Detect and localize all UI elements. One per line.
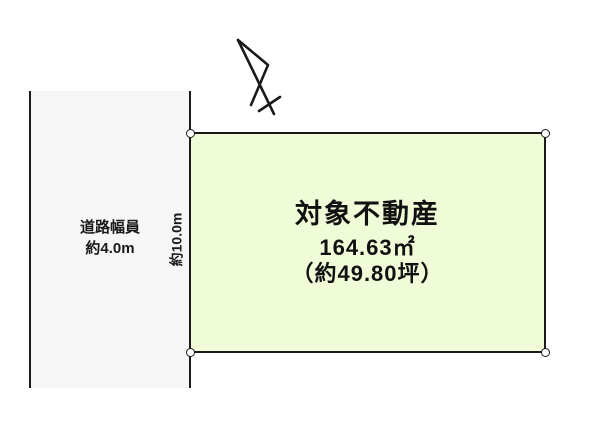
property-title: 対象不動産 xyxy=(189,198,546,230)
frontage-dimension-label: 約10.0m xyxy=(167,204,184,276)
corner-marker-icon xyxy=(186,348,195,357)
property-area-tsubo: （約49.80坪） xyxy=(189,261,546,287)
north-arrow-icon xyxy=(224,28,296,124)
corner-marker-icon xyxy=(541,348,550,357)
property-area-sqm: 164.63㎡ xyxy=(189,235,546,261)
corner-marker-icon xyxy=(541,129,550,138)
property-info: 対象不動産 164.63㎡ （約49.80坪） xyxy=(189,198,546,287)
lot-layout-diagram: 道路幅員 約4.0m 約10.0m 対象不動産 164.63㎡ （約49.80坪… xyxy=(0,0,600,440)
corner-marker-icon xyxy=(186,129,195,138)
